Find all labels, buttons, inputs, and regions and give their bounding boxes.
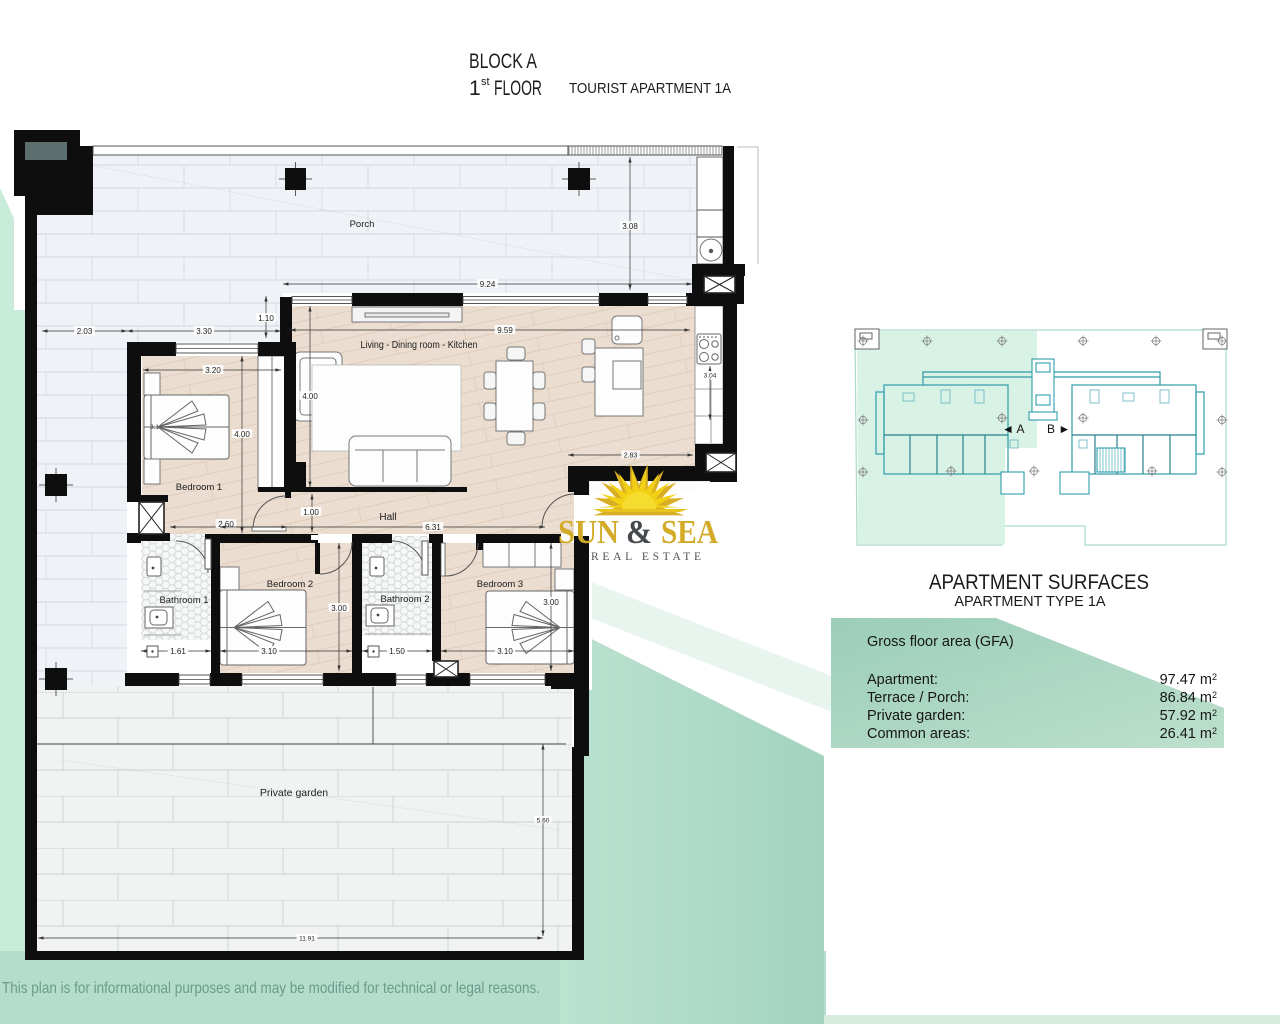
svg-text:&: & <box>626 514 652 551</box>
svg-text:Bedroom 1: Bedroom 1 <box>176 482 222 493</box>
svg-text:B ►: B ► <box>1047 422 1070 436</box>
svg-text:Bathroom 2: Bathroom 2 <box>380 594 429 605</box>
svg-text:3.10: 3.10 <box>261 647 277 656</box>
svg-text:1.10: 1.10 <box>258 314 274 323</box>
svg-text:SEA: SEA <box>661 514 718 551</box>
svg-text:APARTMENT SURFACES: APARTMENT SURFACES <box>929 571 1149 594</box>
svg-text:Bedroom 3: Bedroom 3 <box>477 579 523 590</box>
svg-text:11.91: 11.91 <box>299 935 315 942</box>
svg-text:2.60: 2.60 <box>218 520 234 529</box>
svg-text:Apartment:: Apartment: <box>867 672 938 688</box>
svg-text:Hall: Hall <box>379 512 396 523</box>
svg-text:This plan is for informational: This plan is for informational purposes … <box>2 980 540 997</box>
svg-text:FLOOR: FLOOR <box>494 77 542 100</box>
svg-text:Gross floor area (GFA): Gross floor area (GFA) <box>867 634 1014 650</box>
svg-text:3.1: 3.1 <box>150 424 159 431</box>
svg-text:4.00: 4.00 <box>234 430 250 439</box>
svg-text:1.61: 1.61 <box>170 647 186 656</box>
svg-text:Private garden: Private garden <box>260 787 328 799</box>
svg-text:86.84 m2: 86.84 m2 <box>1160 690 1217 706</box>
svg-text:SUN: SUN <box>558 514 619 551</box>
svg-text:Terrace / Porch:: Terrace / Porch: <box>867 690 969 706</box>
svg-text:1.50: 1.50 <box>389 647 405 656</box>
svg-text:Living - Dining room - Kitchen: Living - Dining room - Kitchen <box>361 340 478 351</box>
svg-text:57.92 m2: 57.92 m2 <box>1160 708 1217 724</box>
svg-text:1.00: 1.00 <box>303 508 319 517</box>
svg-text:◄ A: ◄ A <box>1002 422 1025 436</box>
svg-text:BLOCK A: BLOCK A <box>469 50 537 73</box>
svg-text:Porch: Porch <box>350 219 375 230</box>
svg-text:3.30: 3.30 <box>196 327 212 336</box>
svg-text:TOURIST APARTMENT 1A: TOURIST APARTMENT 1A <box>569 80 731 97</box>
svg-text:APARTMENT TYPE 1A: APARTMENT TYPE 1A <box>954 594 1106 610</box>
svg-text:3.04: 3.04 <box>704 372 717 379</box>
svg-text:Common areas:: Common areas: <box>867 726 970 742</box>
svg-text:3.00: 3.00 <box>331 604 347 613</box>
svg-text:2.83: 2.83 <box>624 453 638 460</box>
svg-text:26.41 m2: 26.41 m2 <box>1160 726 1217 742</box>
svg-text:st: st <box>481 76 490 88</box>
svg-text:3.10: 3.10 <box>497 647 513 656</box>
svg-text:4.00: 4.00 <box>302 392 318 401</box>
svg-text:97.47 m2: 97.47 m2 <box>1160 672 1217 688</box>
svg-text:REAL ESTATE: REAL ESTATE <box>591 551 701 563</box>
svg-text:Bathroom 1: Bathroom 1 <box>159 595 208 606</box>
svg-text:Bedroom 2: Bedroom 2 <box>267 579 313 590</box>
svg-text:6.31: 6.31 <box>425 523 441 532</box>
svg-text:5.60: 5.60 <box>537 817 550 824</box>
svg-text:9.59: 9.59 <box>497 326 513 335</box>
svg-text:3.00: 3.00 <box>543 598 559 607</box>
svg-text:9.24: 9.24 <box>480 280 496 289</box>
svg-text:3.20: 3.20 <box>205 366 221 375</box>
svg-text:1: 1 <box>469 77 481 100</box>
svg-text:Private garden:: Private garden: <box>867 708 965 724</box>
svg-text:3.08: 3.08 <box>622 222 638 231</box>
svg-text:2.03: 2.03 <box>77 327 93 336</box>
